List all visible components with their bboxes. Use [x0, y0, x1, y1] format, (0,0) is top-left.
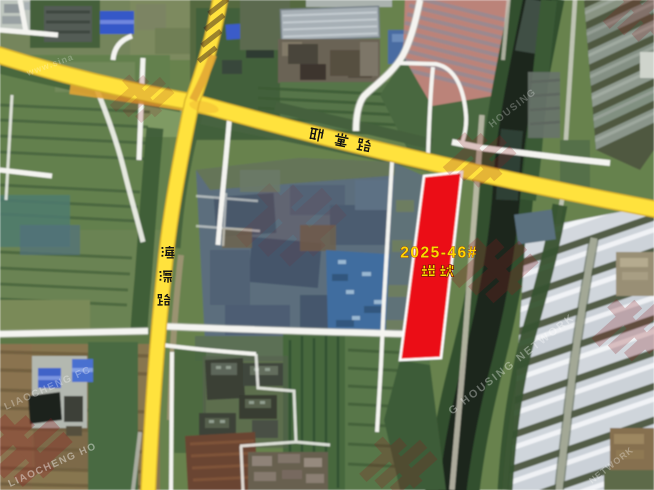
svg-text:2025-46#: 2025-46# — [400, 245, 478, 262]
